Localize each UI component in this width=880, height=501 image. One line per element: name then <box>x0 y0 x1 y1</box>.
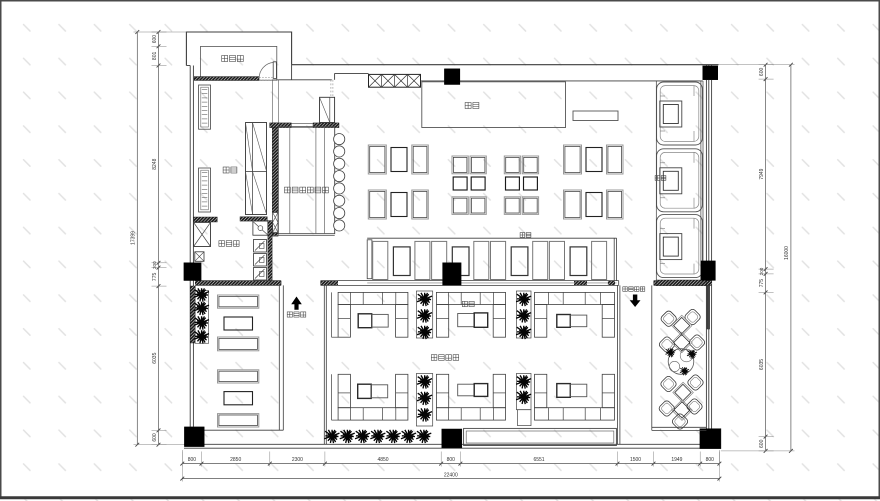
svg-text:775: 775 <box>152 273 158 282</box>
svg-text:800: 800 <box>447 457 456 463</box>
svg-text:6035: 6035 <box>152 352 158 363</box>
svg-text:800: 800 <box>706 457 715 463</box>
svg-text:1500: 1500 <box>630 457 641 463</box>
svg-text:200: 200 <box>152 261 157 269</box>
svg-text:16000: 16000 <box>784 246 790 260</box>
svg-text:2300: 2300 <box>292 457 303 463</box>
svg-text:800: 800 <box>188 457 197 463</box>
svg-text:775: 775 <box>759 279 765 288</box>
svg-text:1949: 1949 <box>671 457 682 463</box>
svg-text:17399: 17399 <box>131 231 137 245</box>
svg-text:2850: 2850 <box>230 457 241 463</box>
svg-text:6551: 6551 <box>533 457 544 463</box>
svg-text:7949: 7949 <box>759 168 765 179</box>
svg-text:6035: 6035 <box>759 359 765 370</box>
svg-text:600: 600 <box>759 439 765 448</box>
svg-text:600: 600 <box>152 35 158 44</box>
svg-text:600: 600 <box>759 68 765 77</box>
svg-text:4850: 4850 <box>377 457 388 463</box>
svg-text:8248: 8248 <box>152 158 158 169</box>
svg-text:801: 801 <box>152 52 158 61</box>
svg-text:200: 200 <box>759 267 764 275</box>
svg-text:600: 600 <box>152 433 158 442</box>
svg-text:22400: 22400 <box>444 472 458 478</box>
